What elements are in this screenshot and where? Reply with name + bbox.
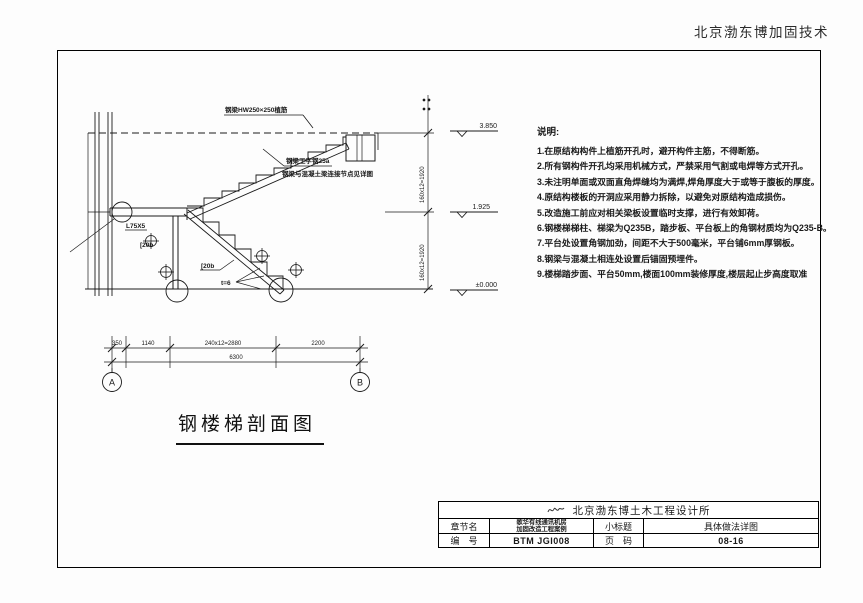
page-value: 08-16 <box>644 534 818 547</box>
dim-2200: 2200 <box>311 341 325 347</box>
dim-total: 6300 <box>229 355 243 361</box>
detail-callout-circles <box>70 202 293 302</box>
elevation-triangle-icon <box>457 290 467 296</box>
note-item: 8.钢梁与混凝土相连处设置后锚固预埋件。 <box>537 252 825 267</box>
note-item: 1.在原结构构件上植筋开孔时，避开构件主筋，不得断筋。 <box>537 144 825 159</box>
institute-logo-icon <box>547 505 565 515</box>
title-block-institute-row: 北京渤东博土木工程设计所 <box>439 502 818 519</box>
note-item: 9.楼梯踏步面、平台50mm,楼面100mm装修厚度,楼层起止步高度取准 <box>537 267 825 282</box>
callout-mid-line1: 钢梁工字钢25a <box>286 156 330 165</box>
grid-bubbles: A B <box>103 368 370 392</box>
notes-title: 说明: <box>537 124 825 138</box>
number-label: 编 号 <box>439 534 490 547</box>
leader-arrows <box>236 268 264 289</box>
elevation-mid: 1.925 <box>472 204 490 211</box>
dim-1140: 1140 <box>142 341 156 347</box>
subtitle-value: 具体做法详图 <box>644 519 818 533</box>
dim-vertical-lower: 160x12=1920 <box>420 244 426 281</box>
drawing-title: 钢楼梯剖面图 <box>176 409 324 445</box>
platform-beam <box>110 208 187 220</box>
drawing-sheet: 北京渤东博加固技术 <box>0 0 863 603</box>
elevation-ground: ±0.000 <box>476 282 497 289</box>
callout-channel-upper: [20b <box>140 242 153 249</box>
section-label: 章节名 <box>439 519 490 533</box>
grid-label-a: A <box>109 378 115 388</box>
bottom-dimensions: 350 1140 240x12=2880 2200 6300 <box>104 336 368 368</box>
grid-label-b: B <box>357 378 363 388</box>
top-beam-section <box>346 135 375 161</box>
note-item: 4.原结构楼板的开洞应采用静力拆除，以避免对原结构造成损伤。 <box>537 190 825 205</box>
upper-flight-steps <box>187 137 349 219</box>
callout-top-beam-label: 钢梁HW250×250植筋 <box>225 105 288 114</box>
notes-panel: 说明: 1.在原结构构件上植筋开孔时，避开构件主筋，不得断筋。 2.所有钢构件开… <box>537 124 825 283</box>
elevation-triangle-icon <box>457 212 467 218</box>
title-block: 北京渤东博土木工程设计所 章节名 歌华有线通讯机房 加固改造工程案例 小标题 具… <box>438 501 819 548</box>
stair-post <box>173 216 178 289</box>
callout-channel-lower: [20b <box>201 263 214 270</box>
subtitle-label: 小标题 <box>594 519 644 533</box>
institute-name: 北京渤东博土木工程设计所 <box>573 503 711 518</box>
title-block-row-2: 章节名 歌华有线通讯机房 加固改造工程案例 小标题 具体做法详图 <box>439 519 818 534</box>
callout-plate-thickness: t=6 <box>221 280 231 287</box>
note-item: 2.所有钢构件开孔均采用机械方式，严禁采用气割或电焊等方式开孔。 <box>537 159 825 174</box>
page-label: 页 码 <box>594 534 644 547</box>
note-item: 7.平台处设置角钢加劲，间距不大于500毫米，平台铺6mm厚钢板。 <box>537 236 825 251</box>
project-name: 歌华有线通讯机房 加固改造工程案例 <box>490 519 594 533</box>
elevation-triangle-icon <box>457 131 467 137</box>
concrete-column-lines <box>88 112 112 296</box>
dim-vertical-upper: 160x12=1920 <box>420 166 426 203</box>
project-name-line2: 加固改造工程案例 <box>516 526 566 533</box>
elevation-top: 3.850 <box>479 123 497 130</box>
dim-treads: 240x12=2880 <box>205 341 242 347</box>
note-item: 6.钢楼梯梯柱、梯梁为Q235B，踏步板、平台板上的角钢材质均为Q235-B。 <box>537 221 825 236</box>
callout-mid-line2: 钢梁与混凝土梁连接节点见详图 <box>282 169 374 178</box>
callout-labels: 钢梁HW250×250植筋 钢梁工字钢25a 钢梁与混凝土梁连接节点见详图 L7… <box>125 105 374 287</box>
number-value: BTM JGI008 <box>490 534 594 547</box>
lower-flight-steps <box>184 208 284 294</box>
project-name-line1: 歌华有线通讯机房 <box>516 519 566 526</box>
elevation-markers: 3.850 1.925 ±0.000 <box>450 123 498 296</box>
callout-angle-steel: L75X5 <box>126 223 146 230</box>
vertical-dimension: 160x12=1920 160x12=1920 <box>378 95 434 293</box>
note-item: 5.改造施工前应对相关梁板设置临时支撑，进行有效卸荷。 <box>537 206 825 221</box>
note-item: 3.未注明单面或双面直角焊缝均为满焊,焊角厚度大于或等于腹板的厚度。 <box>537 175 825 190</box>
dim-350: 350 <box>112 341 123 347</box>
floor-slab-line <box>88 133 378 150</box>
title-block-row-3: 编 号 BTM JGI008 页 码 08-16 <box>439 534 818 547</box>
